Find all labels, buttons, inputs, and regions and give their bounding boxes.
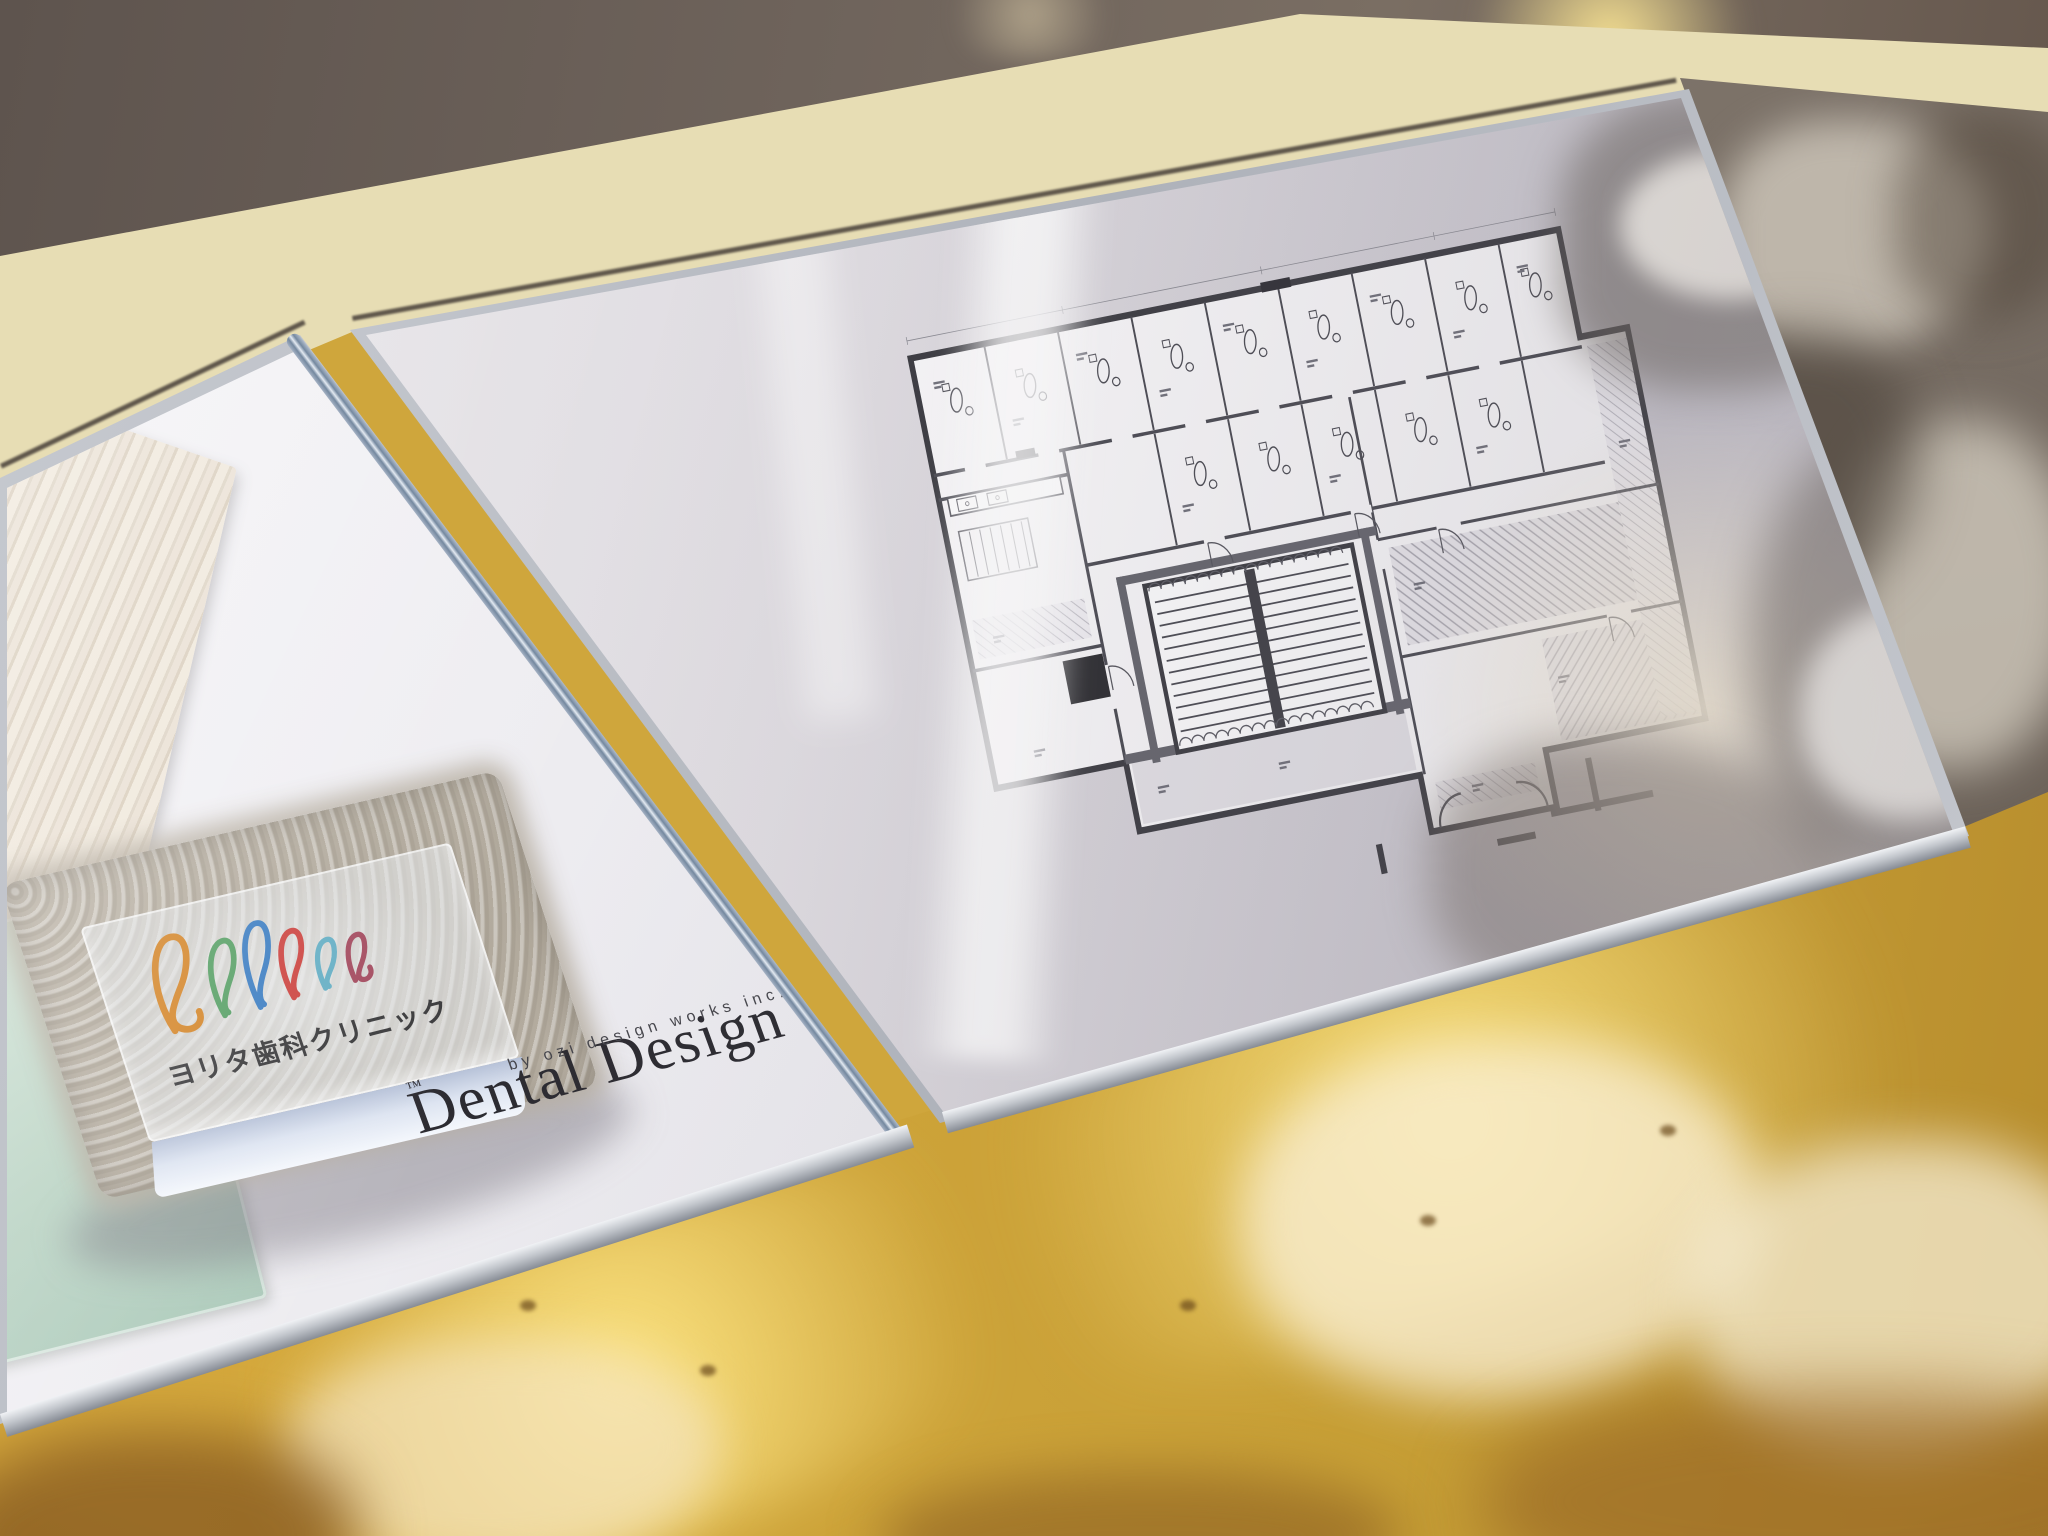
onyx-speck xyxy=(1660,1125,1676,1136)
photo-scene: ヨリタ歯科クリニック Dental Design™ by ozi design … xyxy=(0,0,2048,1536)
onyx-speck xyxy=(520,1300,536,1311)
onyx-speck xyxy=(1420,1215,1436,1226)
dental-clinic-floorplan-drawing xyxy=(775,183,1764,980)
shadow-blob xyxy=(1895,110,2048,320)
onyx-speck xyxy=(700,1365,716,1376)
onyx-dark-vein xyxy=(880,1470,1400,1536)
onyx-dark-vein xyxy=(1480,1390,2048,1536)
onyx-speck xyxy=(1180,1300,1196,1311)
wall-light-reflection-dim xyxy=(930,0,1130,60)
onyx-cloud xyxy=(1240,1040,1760,1400)
